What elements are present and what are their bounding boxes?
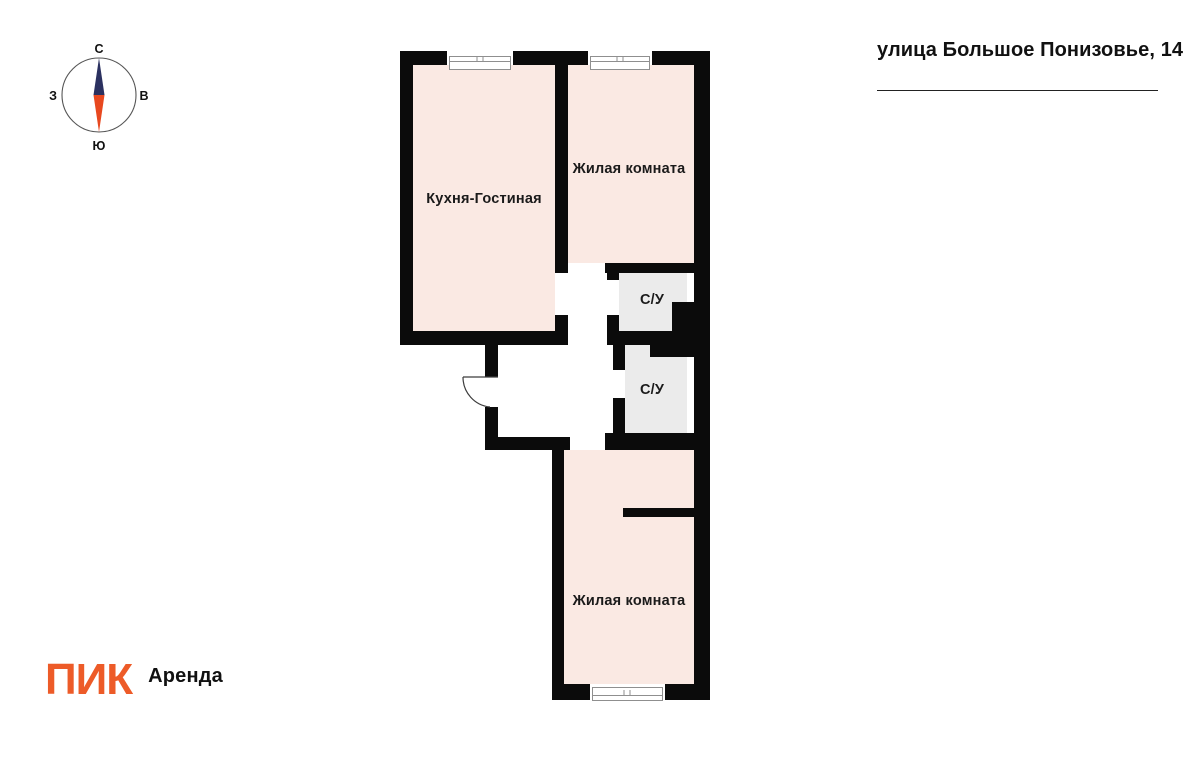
pik-product-label: Аренда: [148, 665, 223, 688]
room-label-bedroom-bottom: Жилая комната: [572, 593, 687, 609]
door-swing-icon: [463, 377, 498, 407]
address-title: улица Большое Понизовье, 14: [877, 38, 1158, 62]
room-bedroom-bottom: [564, 450, 694, 684]
room-label-bathroom-top: С/У: [640, 292, 665, 308]
compass-north-label: С: [94, 42, 103, 56]
compass-east-label: В: [139, 89, 148, 103]
interior-partition: [623, 508, 694, 517]
address-divider: [877, 90, 1158, 91]
window-symbol-kitchen: [447, 51, 513, 70]
compass-south-label: Ю: [93, 139, 106, 153]
pik-logo: ПИК: [45, 656, 132, 704]
room-label-kitchen-living: Кухня-Гостиная: [426, 191, 542, 207]
compass: С Ю З В: [38, 28, 162, 162]
compass-needle-south-icon: [94, 95, 105, 132]
floor-plan-page: С Ю З В улица Большое Понизовье, 14: [0, 0, 1200, 770]
compass-needle-north-icon: [94, 58, 105, 95]
window-symbol-bedroom-top: [588, 51, 652, 70]
room-label-bathroom-bottom: С/У: [640, 382, 665, 398]
address-header: улица Большое Понизовье, 14: [877, 38, 1158, 99]
window-symbol-bedroom-bottom: [590, 684, 665, 701]
room-label-bedroom-top: Жилая комната: [572, 161, 687, 177]
compass-west-label: З: [49, 89, 57, 103]
brand-logo: ПИК Аренда: [45, 656, 223, 704]
floor-plan: Кухня-Гостиная Жилая комната С/У С/У Жил…: [395, 40, 715, 705]
